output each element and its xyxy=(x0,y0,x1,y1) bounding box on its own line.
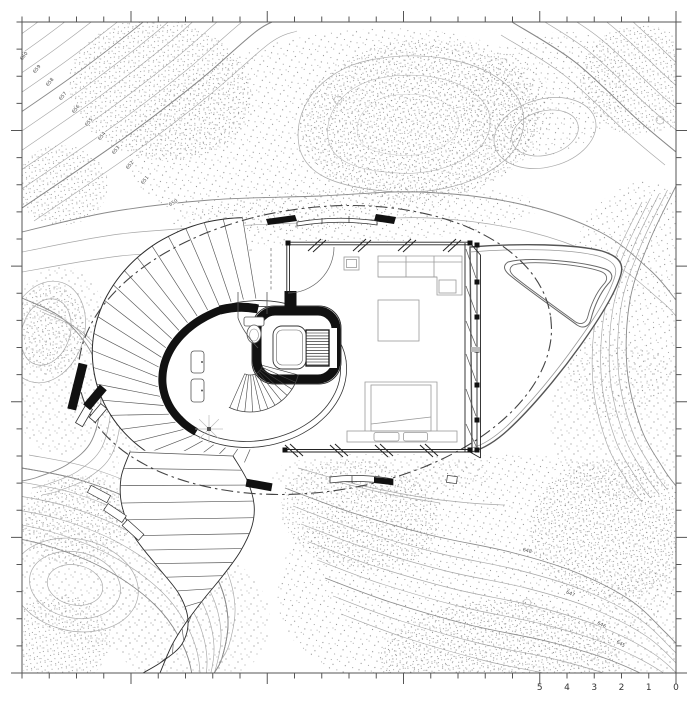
contour-label: 660 xyxy=(19,51,29,62)
site-plan-sheet: 660 659 658 657 656 655 654 653 652 651 … xyxy=(0,0,700,706)
scale-number: 1 xyxy=(646,683,652,693)
contour-label: 659 xyxy=(32,64,42,75)
scale-number: 0 xyxy=(673,683,679,693)
scale-number: 5 xyxy=(537,683,543,693)
scale-number: 2 xyxy=(619,683,625,693)
site-plan-drawing: 660 659 658 657 656 655 654 653 652 651 … xyxy=(0,0,700,706)
scale-bar: 0 1 2 3 4 5 xyxy=(537,683,679,693)
scale-number: 4 xyxy=(564,683,570,693)
contour-label: 658 xyxy=(45,77,55,88)
scale-number: 3 xyxy=(591,683,597,693)
